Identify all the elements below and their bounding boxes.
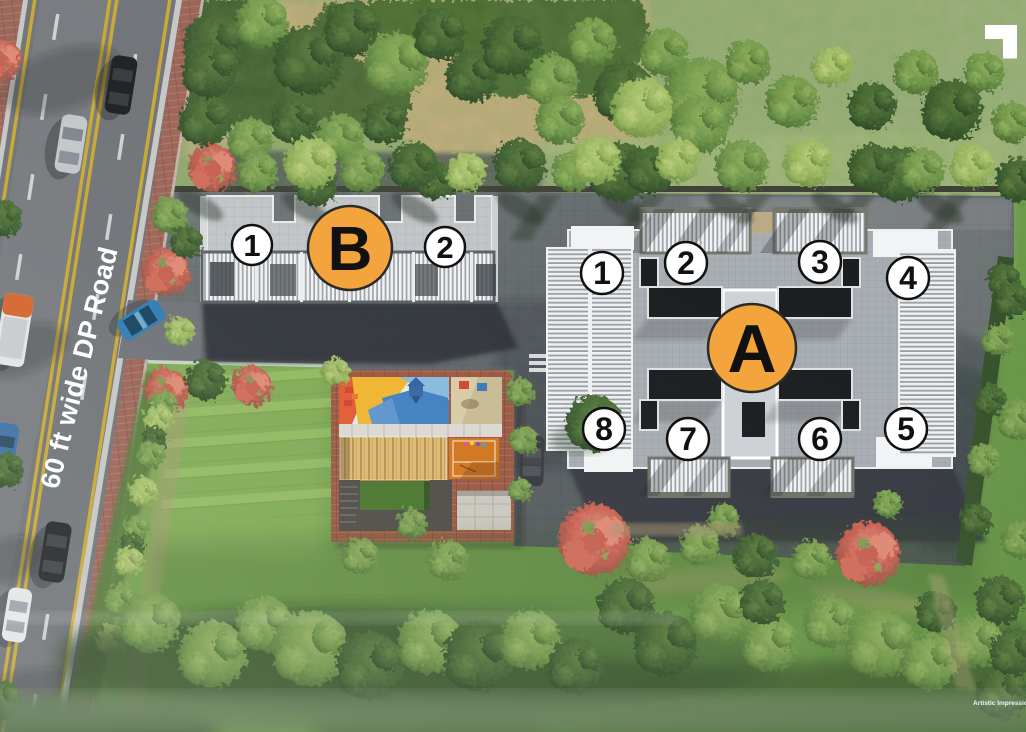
svg-text:2: 2 <box>677 245 695 281</box>
svg-text:3: 3 <box>811 244 829 280</box>
svg-text:6: 6 <box>811 421 829 457</box>
svg-text:4: 4 <box>899 260 917 296</box>
svg-text:Artistic Impression: Artistic Impression <box>973 700 1026 707</box>
svg-text:8: 8 <box>595 411 613 447</box>
svg-text:7: 7 <box>679 421 697 457</box>
svg-text:2: 2 <box>436 230 453 265</box>
svg-text:1: 1 <box>593 255 611 291</box>
svg-text:A: A <box>727 311 776 387</box>
svg-text:5: 5 <box>897 411 915 447</box>
svg-text:B: B <box>328 215 373 284</box>
svg-text:1: 1 <box>243 228 260 263</box>
